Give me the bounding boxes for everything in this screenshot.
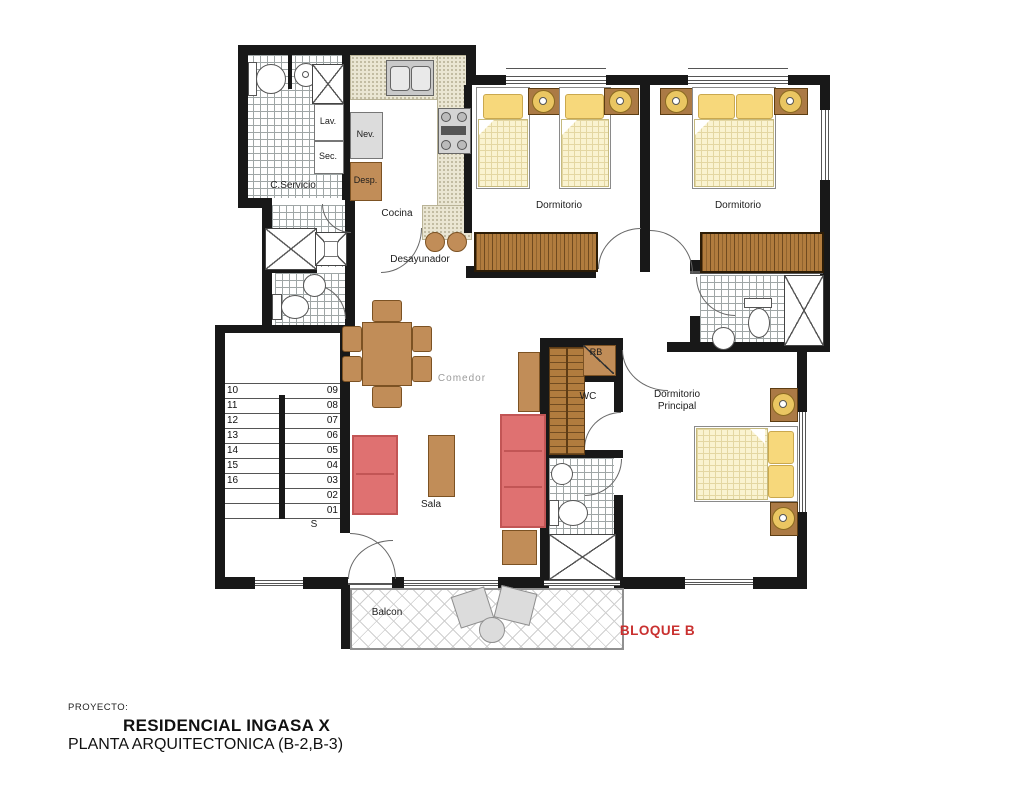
door-arc [598,228,641,269]
stove-burner [457,140,467,150]
coffee-table [428,435,455,497]
wall [640,85,650,272]
duct-shaft [312,64,344,104]
stair-direction-label: S [302,519,326,531]
stair-number: 14 [227,444,238,457]
stair-number: 06 [314,429,338,442]
duct-inner [324,241,338,257]
stair-number: 04 [314,459,338,472]
wall [215,325,350,333]
stair-number: 15 [227,459,238,472]
lamp-dot [539,97,547,105]
floor-plan-canvas: Lav. Sec. C.Servicio Nev. Desp. Cocina D… [0,0,1023,785]
dining-chair [412,326,432,352]
dining-label: Comedor [430,373,494,385]
shower-icon [784,275,824,346]
stair-number: 03 [314,474,338,487]
closet [700,232,824,273]
wall [466,75,506,85]
stair-divider [279,395,285,519]
stair-number: 05 [314,444,338,457]
window-sill-line [506,68,606,69]
bed-pillow [565,94,604,119]
lamp-dot [672,97,680,105]
sofa-cushion-line [504,486,542,488]
block-label: BLOQUE B [610,623,705,638]
rb-label: RB [583,347,609,357]
stair-number: 02 [314,489,338,502]
sink-drain [302,71,309,78]
lamp-dot [779,514,787,522]
console-table [518,352,540,412]
door-arc [622,350,668,391]
toilet-icon [281,295,309,319]
stair-number: 01 [314,504,338,517]
master-bedroom-label-line2: Principal [629,401,725,413]
shower-icon [265,228,317,270]
loveseat [352,435,398,515]
bed-fold [479,120,494,135]
wc-label: WC [574,391,602,403]
wall [753,577,807,589]
bed-pillow [736,94,773,119]
wall [238,55,248,205]
washer-label: Lav. [313,116,343,126]
wall [650,75,688,85]
dining-chair [342,356,362,382]
wall [288,55,292,89]
side-table [502,530,537,565]
dining-table [362,322,412,386]
master-bedroom-label: Dormitorio Principal [629,389,725,412]
wall [820,85,830,110]
bed-pillow [698,94,735,119]
dining-chair [372,300,402,322]
toilet-tank [744,298,772,308]
wall [797,342,807,412]
fridge-label: Nev. [348,129,383,139]
wall [788,75,830,85]
pantry-label: Desp. [348,175,383,185]
wall [606,75,650,85]
plan-title: PLANTA ARQUITECTONICA (B-2,B-3) [68,736,343,754]
stove-handle [441,126,466,135]
master-bedroom-label-line1: Dormitorio [629,389,725,401]
kitchen-label: Cocina [372,208,422,220]
service-room-label: C.Servicio [253,180,333,192]
window [688,76,788,84]
bar-stool [425,232,445,252]
living-label: Sala [413,499,449,511]
toilet-icon [256,64,286,94]
wall [215,325,225,589]
sink-icon [303,274,326,297]
bed-fold [562,120,577,135]
door-arc [381,228,422,273]
stair-number: 16 [227,474,238,487]
project-label: PROYECTO: [68,702,128,713]
window [506,76,606,84]
bedroom1-label: Dormitorio [519,200,599,212]
toilet-icon [748,308,770,338]
project-name: RESIDENCIAL INGASA X [123,716,330,736]
stove-burner [457,112,467,122]
bed-pillow [483,94,523,119]
stair-number: 12 [227,414,238,427]
stair-number: 10 [227,384,238,397]
stove-burner [441,112,451,122]
lamp-dot [779,400,787,408]
sofa [500,414,546,528]
sink-icon [712,327,735,350]
window [404,580,498,586]
sofa-cushion-line [504,450,542,452]
breakfast-label: Desayunador [384,254,456,266]
dining-chair [342,326,362,352]
stair-number: 07 [314,414,338,427]
stair-number: 11 [227,399,237,412]
door-arc [584,412,621,449]
sink-icon [551,463,573,485]
door-threshold [348,583,392,585]
kitchen-sink-basin [390,66,410,91]
stair-number: 08 [314,399,338,412]
stair-number: 13 [227,429,238,442]
bedroom2-label: Dormitorio [698,200,778,212]
kitchen-sink-basin [411,66,431,91]
window-sill-line [688,68,788,69]
bed-fold [695,120,710,135]
window [255,580,303,586]
closet [474,232,598,272]
door-arc [650,230,693,273]
bed-pillow [768,465,794,498]
balcony-label: Balcon [363,607,411,619]
door-arc [585,459,622,496]
toilet-icon [558,500,588,526]
wall [341,583,350,649]
shower-icon [549,534,616,580]
sofa-cushion-line [356,473,394,475]
stove-burner [441,140,451,150]
window [685,579,753,585]
bed-fold [750,429,765,444]
dining-chair [372,386,402,408]
wall [620,577,685,589]
lamp-dot [616,97,624,105]
stair-number: 09 [314,384,338,397]
balcony-table [479,617,505,643]
bar-stool [447,232,467,252]
dryer-label: Sec. [313,151,343,161]
wall [238,45,476,55]
window [821,110,829,180]
window [544,580,620,586]
dining-chair [412,356,432,382]
window [799,412,806,512]
bed-pillow [768,431,794,464]
lamp-dot [786,97,794,105]
